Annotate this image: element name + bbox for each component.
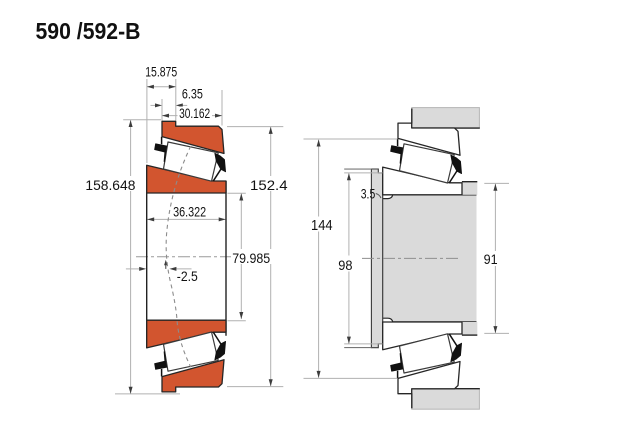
- svg-text:6.35: 6.35: [182, 87, 203, 103]
- svg-text:79.985: 79.985: [232, 251, 270, 267]
- svg-text:158.648: 158.648: [85, 178, 135, 194]
- svg-text:152.4: 152.4: [250, 178, 288, 194]
- svg-text:98: 98: [338, 258, 352, 274]
- svg-text:30.162: 30.162: [179, 106, 210, 122]
- svg-text:91: 91: [484, 252, 498, 268]
- svg-text:3.5: 3.5: [361, 186, 376, 202]
- svg-text:36.322: 36.322: [173, 205, 206, 221]
- svg-text:590 /592-B: 590 /592-B: [36, 18, 141, 44]
- svg-text:-2.5: -2.5: [177, 269, 198, 285]
- svg-text:15.875: 15.875: [145, 65, 177, 81]
- svg-text:144: 144: [311, 218, 333, 234]
